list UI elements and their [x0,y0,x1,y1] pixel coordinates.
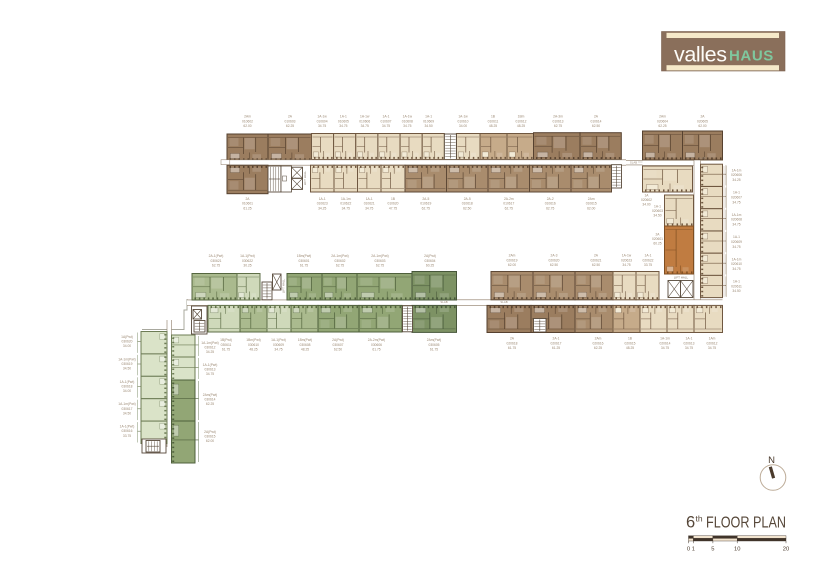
svg-text:61.25: 61.25 [552,346,560,350]
svg-text:62.50: 62.50 [592,124,600,128]
svg-text:010615: 010615 [586,202,597,206]
svg-text:SLAB: SLAB [440,300,447,304]
svg-text:34.50: 34.50 [123,367,131,371]
svg-text:2A-1m(Pwt): 2A-1m(Pwt) [331,254,348,258]
svg-text:010614: 010614 [590,119,601,123]
svg-text:030615: 030615 [204,435,215,439]
svg-text:1A-1m(Pwt): 1A-1m(Pwt) [118,357,135,361]
svg-text:2A(Pwt): 2A(Pwt) [332,338,344,342]
svg-text:030618: 030618 [121,384,132,388]
svg-text:020623: 020623 [621,258,632,262]
svg-text:020619: 020619 [506,258,517,262]
svg-text:1A(Pwt): 1A(Pwt) [121,335,133,339]
svg-text:60.25: 60.25 [426,264,434,268]
svg-text:60.25: 60.25 [653,242,661,246]
svg-text:2Am: 2Am [244,115,251,119]
svg-text:010616: 010616 [545,202,556,206]
svg-text:2A-2m: 2A-2m [504,197,514,201]
svg-text:48.25: 48.25 [249,348,257,352]
svg-text:020621: 020621 [590,258,601,262]
svg-text:62.25: 62.25 [206,402,214,406]
svg-text:33.75: 33.75 [123,434,131,438]
svg-text:62.75: 62.75 [546,206,554,210]
svg-text:1A-1m: 1A-1m [341,197,351,201]
svg-text:30.25: 30.25 [243,264,251,268]
svg-text:010604: 010604 [317,119,328,123]
svg-text:020603: 020603 [652,209,663,213]
svg-text:030605: 030605 [428,343,439,347]
svg-text:62.00: 62.00 [243,124,251,128]
svg-text:030621: 030621 [210,259,221,263]
svg-text:34.75: 34.75 [685,346,693,350]
svg-text:010605: 010605 [338,119,349,123]
svg-text:34.00: 34.00 [123,389,131,393]
svg-text:030604: 030604 [424,259,435,263]
svg-text:34.75: 34.75 [732,245,740,249]
svg-text:020620: 020620 [548,258,559,262]
svg-text:1A-1: 1A-1 [686,337,693,341]
svg-text:th: th [696,514,703,524]
svg-text:62.25: 62.25 [658,124,666,128]
svg-text:2A(Pwt): 2A(Pwt) [424,254,436,258]
svg-text:61.75: 61.75 [300,264,308,268]
svg-text:030614: 030614 [204,398,215,402]
svg-text:61.75: 61.75 [508,346,516,350]
svg-text:61.75: 61.75 [430,348,438,352]
svg-text:34.75: 34.75 [732,223,740,227]
svg-text:030612: 030612 [204,346,215,350]
svg-text:1Am: 1Am [709,337,716,341]
svg-text:1A-1m: 1A-1m [732,168,742,172]
svg-text:030610: 030610 [248,343,259,347]
svg-text:1A-1: 1A-1 [425,115,432,119]
svg-text:020618: 020618 [506,341,517,345]
svg-text:010613: 010613 [552,119,563,123]
svg-text:34.75: 34.75 [274,348,282,352]
svg-text:030601: 030601 [298,259,309,263]
svg-text:1A-1m: 1A-1m [660,337,670,341]
svg-text:010619: 010619 [420,202,431,206]
svg-text:020604: 020604 [657,119,668,123]
svg-text:61.25: 61.25 [243,206,251,210]
svg-text:010602: 010602 [242,119,253,123]
svg-text:LIFT HALL: LIFT HALL [282,278,286,293]
svg-text:030620: 030620 [121,340,132,344]
svg-text:1Bm(Pwt): 1Bm(Pwt) [246,338,260,342]
svg-text:020607: 020607 [731,196,742,200]
svg-text:SLAB: SLAB [500,300,507,304]
svg-text:1A-1w: 1A-1w [317,115,327,119]
svg-text:1A-1m: 1A-1m [732,213,742,217]
svg-text:34.75: 34.75 [206,372,214,376]
svg-text:34.50: 34.50 [653,214,661,218]
svg-text:030611: 030611 [221,343,232,347]
svg-text:010618: 010618 [462,202,473,206]
svg-text:62.75: 62.75 [505,206,513,210]
svg-text:030617: 030617 [121,407,132,411]
svg-text:030616: 030616 [121,429,132,433]
svg-text:62.25: 62.25 [286,124,294,128]
svg-text:62.00: 62.00 [206,439,214,443]
svg-text:1A-1(Pwt): 1A-1(Pwt) [271,338,286,342]
svg-text:030622: 030622 [242,259,253,263]
svg-text:34.25: 34.25 [318,206,326,210]
svg-text:010620: 010620 [387,202,398,206]
svg-text:2A-2: 2A-2 [547,197,554,201]
svg-text:010606: 010606 [359,119,370,123]
svg-text:valles: valles [674,43,727,67]
svg-text:020606: 020606 [731,173,742,177]
svg-text:1A-1w: 1A-1w [403,115,413,119]
svg-text:1A-1(Pwt): 1A-1(Pwt) [240,254,255,258]
svg-text:1A-1: 1A-1 [733,191,740,195]
svg-text:62.75: 62.75 [554,124,562,128]
svg-text:62.75: 62.75 [212,264,220,268]
svg-text:030603: 030603 [374,259,385,263]
svg-text:020615: 020615 [624,341,635,345]
svg-text:1A-1: 1A-1 [383,115,390,119]
svg-text:62.00: 62.00 [508,263,516,267]
svg-text:2A(Pwt): 2A(Pwt) [204,430,216,434]
svg-text:1A-1w: 1A-1w [360,115,370,119]
svg-text:010609: 010609 [423,119,434,123]
svg-text:020616: 020616 [592,341,603,345]
svg-text:LIFT HALL: LIFT HALL [674,276,689,280]
svg-text:1A-1: 1A-1 [366,197,373,201]
svg-text:0: 0 [687,547,690,553]
svg-text:020609: 020609 [731,240,742,244]
svg-text:020614: 020614 [659,341,670,345]
svg-text:2A-1(Pwt): 2A-1(Pwt) [209,254,224,258]
svg-text:34.75: 34.75 [708,346,716,350]
svg-text:62.75: 62.75 [336,264,344,268]
svg-text:34.50: 34.50 [123,411,131,415]
svg-text:34.75: 34.75 [339,124,347,128]
svg-text:2A-1m(Pwt): 2A-1m(Pwt) [371,254,388,258]
svg-text:010611: 010611 [488,119,499,123]
svg-text:010623: 010623 [317,202,328,206]
svg-text:FLOOR PLAN: FLOOR PLAN [706,515,786,532]
svg-text:1A-1w: 1A-1w [622,254,632,258]
svg-text:HAUS: HAUS [729,48,774,65]
svg-text:34.75: 34.75 [318,124,326,128]
svg-text:1A-1: 1A-1 [654,205,661,209]
svg-text:2Am(Pwt): 2Am(Pwt) [427,338,441,342]
svg-text:20: 20 [783,547,789,553]
svg-text:020602: 020602 [641,198,652,202]
svg-text:010621: 010621 [364,202,375,206]
svg-text:N: N [768,455,775,466]
svg-text:2A-3m: 2A-3m [553,115,563,119]
svg-text:62.75: 62.75 [376,264,384,268]
svg-text:010622: 010622 [340,202,351,206]
svg-text:34.00: 34.00 [459,124,467,128]
svg-text:020611: 020611 [731,284,742,288]
svg-text:020612: 020612 [706,341,717,345]
svg-text:1A-1m: 1A-1m [732,257,742,261]
svg-text:010603: 010603 [284,119,295,123]
svg-text:020610: 020610 [731,262,742,266]
svg-text:61.75: 61.75 [372,348,380,352]
svg-text:34.75: 34.75 [342,206,350,210]
svg-text:010608: 010608 [402,119,413,123]
svg-text:020617: 020617 [550,341,561,345]
svg-text:34.50: 34.50 [424,124,432,128]
svg-text:61.75: 61.75 [222,348,230,352]
svg-text:020601: 020601 [652,237,663,241]
svg-text:34.75: 34.75 [732,267,740,271]
svg-text:1A-1: 1A-1 [645,254,652,258]
svg-text:34.25: 34.25 [206,350,214,354]
svg-text:1A-1: 1A-1 [733,235,740,239]
svg-text:2A-5: 2A-5 [422,197,429,201]
svg-text:34.75: 34.75 [382,124,390,128]
svg-text:1A-1(Pwt): 1A-1(Pwt) [120,380,135,384]
svg-text:020613: 020613 [683,341,694,345]
svg-text:020608: 020608 [731,218,742,222]
svg-text:1A-1m(Pwt): 1A-1m(Pwt) [118,402,135,406]
svg-text:2A-2m(Pwt): 2A-2m(Pwt) [368,338,385,342]
svg-text:2A-1: 2A-1 [553,337,560,341]
svg-text:2Am: 2Am [595,337,602,341]
svg-text:2Am: 2Am [659,115,666,119]
svg-text:10: 10 [734,547,740,553]
svg-text:2Am(Pwt): 2Am(Pwt) [203,393,217,397]
svg-text:34.00: 34.00 [642,203,650,207]
svg-text:34.75: 34.75 [732,200,740,204]
svg-text:62.50: 62.50 [334,348,342,352]
svg-text:010607: 010607 [380,119,391,123]
svg-text:030613: 030613 [204,368,215,372]
svg-text:010610: 010610 [457,119,468,123]
svg-text:62.00: 62.00 [587,206,595,210]
svg-text:62.50: 62.50 [463,206,471,210]
svg-text:030602: 030602 [334,259,345,263]
svg-text:1Bm: 1Bm [518,115,525,119]
svg-text:48.25: 48.25 [301,348,309,352]
svg-text:62.00: 62.00 [698,124,706,128]
svg-text:1B(Pwt): 1B(Pwt) [220,338,232,342]
svg-text:2Am: 2Am [509,254,516,258]
svg-text:020605: 020605 [697,119,708,123]
svg-text:48.25: 48.25 [517,124,525,128]
svg-text:010601: 010601 [242,202,253,206]
svg-text:62.75: 62.75 [422,206,430,210]
svg-text:010612: 010612 [515,119,526,123]
svg-text:1Bm(Pwt): 1Bm(Pwt) [298,338,312,342]
svg-text:1A-1: 1A-1 [340,115,347,119]
svg-text:030608: 030608 [299,343,310,347]
svg-text:34.75: 34.75 [361,124,369,128]
svg-text:030619: 030619 [121,362,132,366]
svg-text:010617: 010617 [503,202,514,206]
svg-text:62.50: 62.50 [550,263,558,267]
svg-text:34.00: 34.00 [123,344,131,348]
svg-text:33.75: 33.75 [644,263,652,267]
svg-text:030607: 030607 [332,343,343,347]
svg-text:1Bm(Pwt): 1Bm(Pwt) [297,254,311,258]
svg-text:030609: 030609 [273,343,284,347]
svg-text:1A-1(Pwt): 1A-1(Pwt) [120,425,135,429]
svg-text:2A-5: 2A-5 [464,197,471,201]
svg-text:020622: 020622 [642,258,653,262]
svg-text:SLAB: SLAB [698,156,705,160]
svg-text:48.25: 48.25 [489,124,497,128]
svg-text:34.75: 34.75 [365,206,373,210]
svg-text:47.75: 47.75 [389,206,397,210]
svg-text:62.25: 62.25 [594,346,602,350]
svg-text:030606: 030606 [371,343,382,347]
svg-text:5: 5 [711,547,714,553]
svg-text:34.75: 34.75 [622,263,630,267]
svg-text:1A-1(Pwt): 1A-1(Pwt) [203,363,218,367]
svg-text:62.50: 62.50 [592,263,600,267]
svg-text:1A-1m(Pwt): 1A-1m(Pwt) [201,341,218,345]
svg-text:34.50: 34.50 [732,289,740,293]
svg-text:LIFT HALL: LIFT HALL [303,170,307,185]
svg-text:1A-1: 1A-1 [733,280,740,284]
svg-text:2Am: 2Am [588,197,595,201]
svg-text:1: 1 [692,547,695,553]
svg-text:1A-1w: 1A-1w [458,115,468,119]
svg-text:34.25: 34.25 [732,178,740,182]
svg-text:2A-3: 2A-3 [551,254,558,258]
svg-text:48.25: 48.25 [626,346,634,350]
svg-text:6: 6 [686,514,695,532]
svg-text:34.75: 34.75 [403,124,411,128]
svg-text:1A-1: 1A-1 [319,197,326,201]
svg-text:34.75: 34.75 [661,346,669,350]
svg-text:SLAB: SLAB [630,160,637,164]
